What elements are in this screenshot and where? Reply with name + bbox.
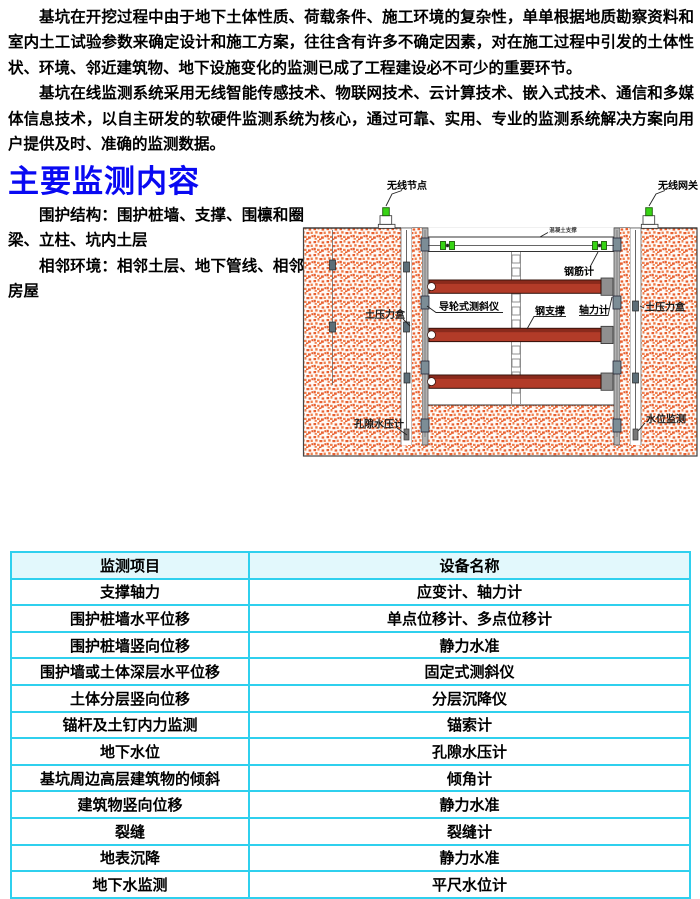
wireless-node-sensor xyxy=(383,208,390,216)
earth-pressure-box-left-sensor xyxy=(404,322,410,332)
water-level-tip xyxy=(633,429,638,440)
rebar-meter-right xyxy=(602,242,607,250)
table-cell: 静力水准 xyxy=(249,791,690,818)
table-row: 地下水监测平尺水位计 xyxy=(11,871,690,898)
table-row: 围护墙或土体深层水平位移固定式测斜仪 xyxy=(11,658,690,685)
rebar-meter-label: 钢筋计 xyxy=(564,265,594,278)
axial-force-meter-label: 轴力计 xyxy=(579,304,609,317)
intro-paragraph-2: 基坑在线监测系统采用无线智能传感技术、物联网技术、云计算技术、嵌入式技术、通信和… xyxy=(8,81,694,157)
adjacent-environment-paragraph: 相邻环境：相邻土层、地下管线、相邻房屋 xyxy=(8,254,304,305)
table-cell: 土体分层竖向位移 xyxy=(11,685,249,712)
column-header-monitoring-item: 监测项目 xyxy=(11,552,249,579)
table-cell: 支撑轴力 xyxy=(11,579,249,606)
earth-pressure-box-right-sensor xyxy=(633,301,639,311)
steel-support-bar-2 xyxy=(428,326,614,343)
table-cell: 单点位移计、多点位移计 xyxy=(249,605,690,632)
wireless-node-label: 无线节点 xyxy=(386,179,427,192)
table-cell: 固定式测斜仪 xyxy=(249,658,690,685)
table-cell: 围护墙或土体深层水平位移 xyxy=(11,658,249,685)
earth-pressure-box-left-label: 土压力盒 xyxy=(365,308,406,321)
table-cell: 地下水位 xyxy=(11,738,249,765)
steel-support-label: 钢支撑 xyxy=(535,305,565,318)
monitoring-table: 监测项目 设备名称 支撑轴力应变计、轴力计围护桩墙水平位移单点位移计、多点位移计… xyxy=(10,551,691,899)
table-cell: 应变计、轴力计 xyxy=(249,579,690,606)
table-cell: 锚索计 xyxy=(249,712,690,739)
foundation-pit-diagram: 无线节点 无线网关 混凝土支撑 钢筋计 导轮式测斜仪 钢支撑 轴力计 土压力盒 … xyxy=(300,175,700,475)
pit-cross-section-svg: 无线节点 无线网关 混凝土支撑 钢筋计 导轮式测斜仪 钢支撑 轴力计 土压力盒 … xyxy=(300,175,700,475)
table-cell: 地下水监测 xyxy=(11,871,249,898)
intro-paragraph-1: 基坑在开挖过程中由于地下土体性质、荷载条件、施工环境的复杂性，单单根据地质勘察资… xyxy=(8,5,694,81)
column-header-device-name: 设备名称 xyxy=(249,552,690,579)
table-cell: 基坑周边高层建筑物的倾斜 xyxy=(11,765,249,792)
wireless-gateway-device xyxy=(641,208,658,229)
wireless-node-device xyxy=(378,208,395,229)
table-cell: 静力水准 xyxy=(249,845,690,872)
table-cell: 分层沉降仪 xyxy=(249,685,690,712)
wireless-gateway-label: 无线网关 xyxy=(657,179,698,192)
concrete-support-label: 混凝土支撑 xyxy=(549,226,577,234)
wireless-gateway-sensor xyxy=(646,208,653,216)
table-row: 地下水位孔隙水压计 xyxy=(11,738,690,765)
pore-pressure-label: 孔隙水压计 xyxy=(354,418,404,431)
table-cell: 平尺水位计 xyxy=(249,871,690,898)
water-level-label: 水位监测 xyxy=(645,413,686,426)
table-row: 锚杆及土钉内力监测锚索计 xyxy=(11,712,690,739)
axial-force-meter-cap xyxy=(601,278,613,295)
table-row: 支撑轴力应变计、轴力计 xyxy=(11,579,690,606)
table-cell: 锚杆及土钉内力监测 xyxy=(11,712,249,739)
table-cell: 孔隙水压计 xyxy=(249,738,690,765)
steel-support-bar-1 xyxy=(428,278,614,295)
table-cell: 裂缝 xyxy=(11,818,249,845)
table-row: 裂缝裂缝计 xyxy=(11,818,690,845)
left-wall-soil-strip xyxy=(412,228,422,445)
table-header-row: 监测项目 设备名称 xyxy=(11,552,690,579)
table-row: 围护桩墙竖向位移静力水准 xyxy=(11,632,690,659)
table-row: 土体分层竖向位移分层沉降仪 xyxy=(11,685,690,712)
table-row: 地表沉降静力水准 xyxy=(11,845,690,872)
rebar-meter-left xyxy=(450,242,455,250)
enclosure-structure-paragraph: 围护结构：围护桩墙、支撑、围檩和圈梁、立柱、坑内土层 xyxy=(8,203,304,254)
table-cell: 围护桩墙水平位移 xyxy=(11,605,249,632)
table-row: 基坑周边高层建筑物的倾斜倾角计 xyxy=(11,765,690,792)
table-cell: 围护桩墙竖向位移 xyxy=(11,632,249,659)
right-wall-soil-strip xyxy=(620,228,630,445)
intro-paragraphs: 基坑在开挖过程中由于地下土体性质、荷载条件、施工环境的复杂性，单单根据地质勘察资… xyxy=(8,5,694,157)
table-cell: 倾角计 xyxy=(249,765,690,792)
table-cell: 静力水准 xyxy=(249,632,690,659)
table-cell: 地表沉降 xyxy=(11,845,249,872)
earth-pressure-box-right-label: 土压力盒 xyxy=(645,301,686,314)
page-title: 主要监测内容 xyxy=(8,156,200,201)
steel-support-bar-3 xyxy=(428,373,614,390)
table-row: 围护桩墙水平位移单点位移计、多点位移计 xyxy=(11,605,690,632)
monitoring-scope-text: 围护结构：围护桩墙、支撑、围檩和圈梁、立柱、坑内土层 相邻环境：相邻土层、地下管… xyxy=(8,203,304,305)
table-cell: 裂缝计 xyxy=(249,818,690,845)
table-row: 建筑物竖向位移静力水准 xyxy=(11,791,690,818)
monitor-table-body: 支撑轴力应变计、轴力计围护桩墙水平位移单点位移计、多点位移计围护桩墙竖向位移静力… xyxy=(11,579,690,898)
table-cell: 建筑物竖向位移 xyxy=(11,791,249,818)
inclinometer-label: 导轮式测斜仪 xyxy=(439,300,500,313)
